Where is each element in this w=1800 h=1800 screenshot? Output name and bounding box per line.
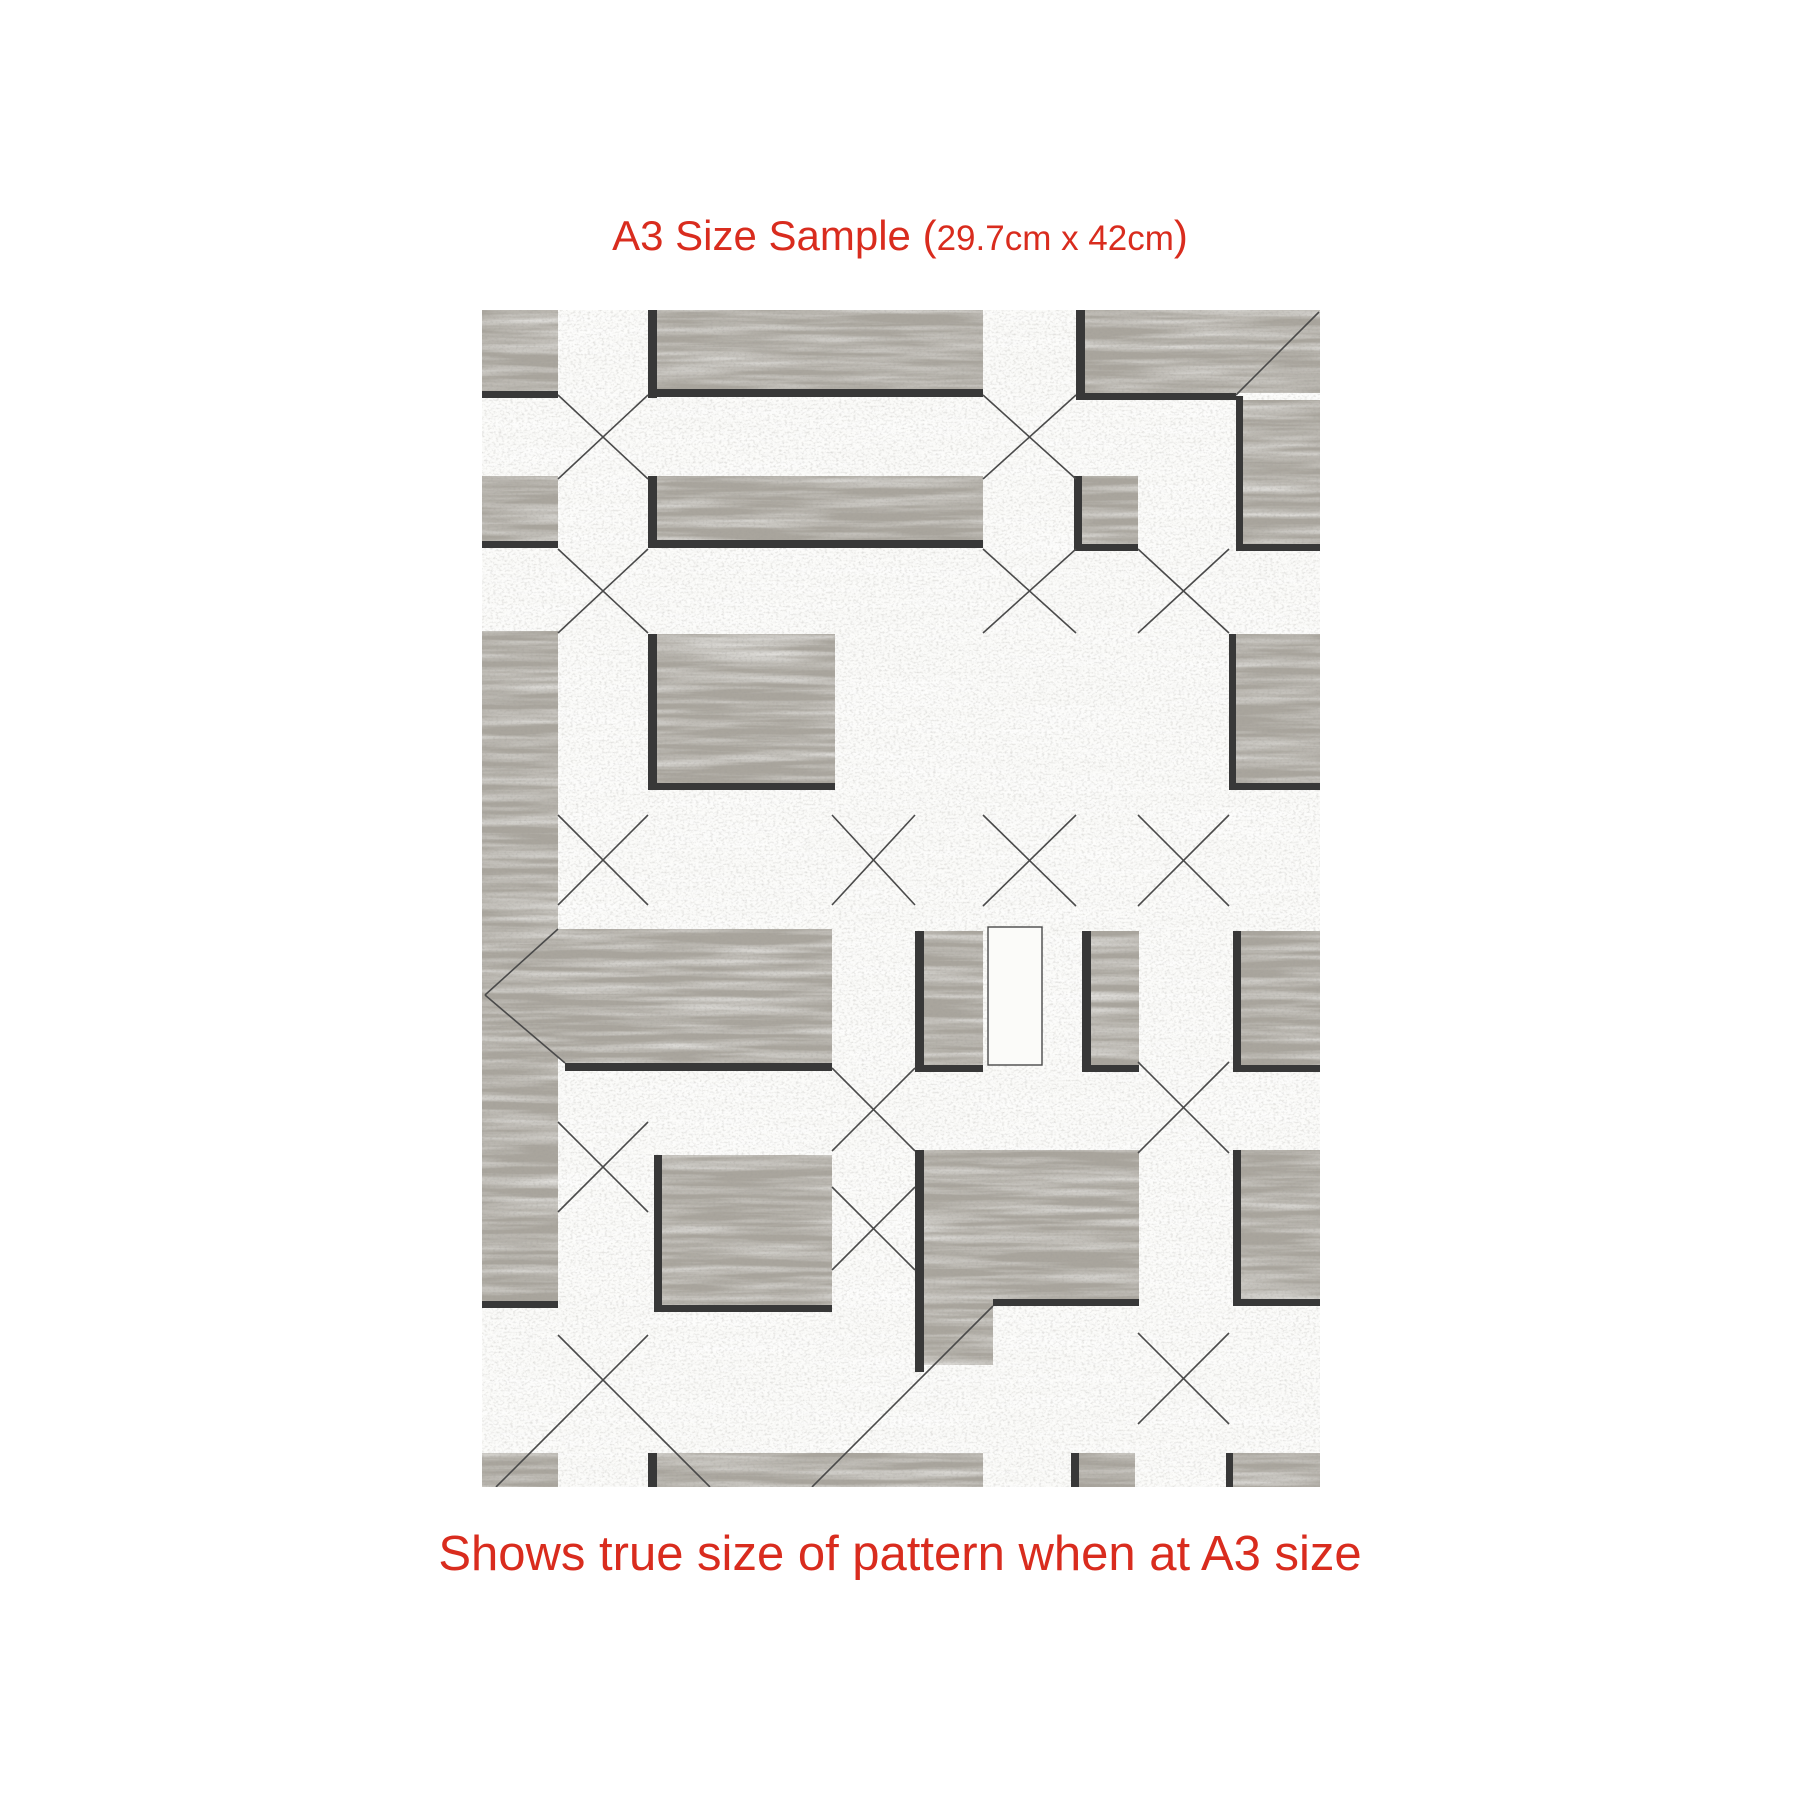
title-dimensions-text: 29.7cm x 42cm [937, 219, 1174, 258]
sample-sheet: A3 Size Sample (29.7cm x 42cm) Shows tru… [0, 0, 1800, 1800]
pattern-sample-svg [482, 310, 1320, 1487]
caption: Shows true size of pattern when at A3 si… [0, 1524, 1800, 1584]
title-main-text: A3 Size Sample ( [612, 212, 936, 259]
title-close-paren: ) [1174, 212, 1188, 259]
page-title: A3 Size Sample (29.7cm x 42cm) [0, 210, 1800, 265]
pattern-sample-image [482, 310, 1320, 1487]
